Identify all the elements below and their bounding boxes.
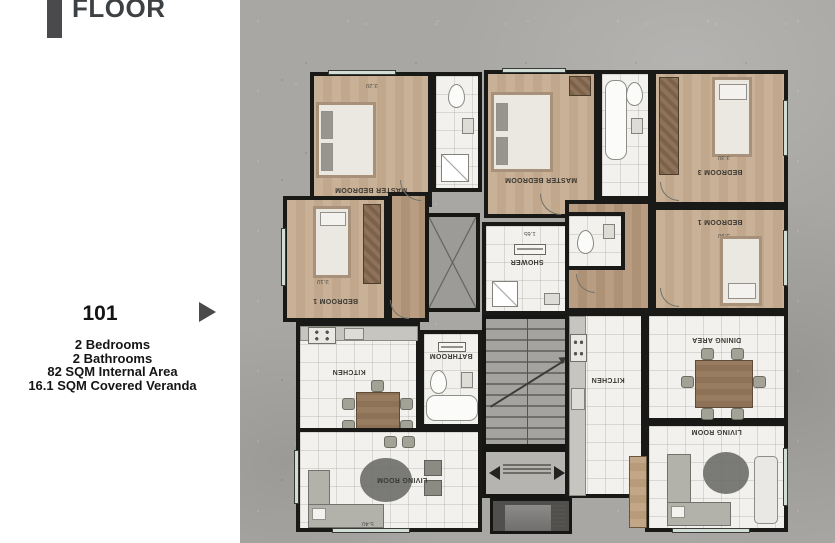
chair: [681, 376, 694, 388]
toilet-icon: [448, 84, 465, 108]
sink-icon: [571, 388, 585, 410]
tv-sideboard: [629, 456, 647, 528]
detail-bathrooms: 2 Bathrooms: [5, 352, 220, 366]
room-shower: 1.65 SHOWER: [482, 222, 572, 315]
sink-icon: [462, 118, 474, 134]
unit-number: 101: [40, 302, 160, 326]
bathtub-icon: [605, 80, 627, 160]
floor-title: FLOOR: [72, 0, 166, 24]
chair: [400, 398, 413, 410]
window: [783, 448, 788, 506]
room-label: BATHROOM: [424, 352, 478, 359]
stove-icon: [308, 327, 336, 344]
dining-table: [695, 360, 753, 408]
plan-backdrop: MASTER BEDROOM 3.20 BEDROOM 1 3.10 KITCH…: [240, 0, 835, 543]
room-label: KITCHEN: [575, 376, 641, 383]
room-bathroom-left: BATHROOM: [420, 330, 482, 428]
tv-unit: [424, 460, 442, 476]
sink-icon: [631, 118, 643, 134]
window: [783, 100, 788, 156]
room-label: SHOWER: [486, 258, 568, 265]
ensuite-bathroom-left: [432, 72, 482, 192]
room-label: LIVING ROOM: [649, 428, 784, 435]
wardrobe: [363, 204, 381, 284]
bathtub-icon: [426, 395, 478, 421]
room-label: KITCHEN: [282, 368, 416, 375]
wardrobe: [659, 77, 679, 175]
toilet-icon: [577, 230, 594, 254]
detail-bedrooms: 2 Bedrooms: [5, 338, 220, 352]
chair: [384, 436, 397, 448]
toilet-icon: [626, 82, 643, 106]
pillow: [496, 103, 508, 131]
chair: [701, 408, 714, 420]
sink-icon: [461, 372, 473, 388]
illegible-microtext: [527, 464, 551, 474]
single-bed: [720, 236, 762, 306]
elevator-shaft: [425, 213, 480, 312]
room-label: BEDROOM 3: [656, 168, 784, 175]
accent-bar: [47, 0, 62, 38]
chair: [701, 348, 714, 360]
dimension-label: 5.40: [362, 520, 374, 526]
pillow: [719, 84, 747, 100]
shower-stall-icon: [441, 154, 469, 182]
shower-stall-icon: [492, 281, 518, 307]
single-bed: [712, 77, 752, 157]
room-label: LIVING ROOM: [326, 476, 478, 483]
staircase: [482, 315, 572, 448]
toilet-icon: [430, 370, 447, 394]
window: [281, 228, 286, 286]
single-bed: [313, 206, 351, 278]
pillow: [321, 111, 333, 139]
pillow: [320, 212, 346, 226]
pillow: [728, 283, 756, 299]
stair-landing: [482, 448, 572, 498]
window: [332, 528, 410, 533]
pillow: [671, 506, 685, 518]
sink-icon: [603, 224, 615, 239]
window: [294, 450, 299, 504]
sink-icon: [344, 328, 364, 340]
unit-details: 2 Bedrooms 2 Bathrooms 82 SQM Internal A…: [5, 338, 220, 392]
chair: [753, 376, 766, 388]
pillow: [496, 137, 508, 165]
dimension-label: 3.30: [718, 154, 730, 160]
window: [328, 70, 396, 75]
pillow: [312, 508, 326, 520]
chair: [402, 436, 415, 448]
chair: [342, 398, 355, 410]
chair: [731, 408, 744, 420]
ensuite-bathroom-right: [598, 70, 652, 200]
illegible-microtext: [503, 464, 527, 474]
room-wc-right: [565, 212, 625, 270]
illegible-microtext: [552, 505, 566, 529]
rug: [703, 452, 749, 494]
illegible-microtext: [514, 244, 546, 255]
room-label: BEDROOM 1: [656, 218, 784, 225]
sink-icon: [544, 293, 560, 305]
pointer-arrow-icon[interactable]: [199, 302, 216, 322]
dimension-label: 3.20: [366, 82, 378, 88]
window: [502, 68, 566, 73]
double-bed: [491, 92, 553, 172]
dimension-label: 3.10: [317, 278, 329, 284]
room-label: DINING AREA: [649, 336, 784, 343]
building-entrance: [490, 498, 572, 534]
white-sofa: [754, 456, 778, 524]
window: [783, 230, 788, 286]
room-bedroom1-left: BEDROOM 1 3.10: [283, 196, 388, 322]
direction-arrow-left-icon: [489, 466, 500, 480]
room-living-left: LIVING ROOM 5.40: [296, 428, 482, 532]
dimension-label: 1.65: [524, 230, 536, 236]
stove-icon: [570, 334, 587, 362]
double-bed: [316, 102, 376, 178]
floorplan-page: FLOOR 101 2 Bedrooms 2 Bathrooms 82 SQM …: [0, 0, 835, 543]
chair: [731, 348, 744, 360]
room-living-right: LIVING ROOM: [645, 422, 788, 532]
entrance-door: [505, 505, 551, 531]
illegible-microtext: [438, 342, 466, 352]
detail-covered-veranda: 16.1 SQM Covered Veranda: [5, 379, 220, 393]
chair: [371, 380, 384, 392]
window: [672, 528, 750, 533]
room-label: BEDROOM 1: [287, 297, 384, 304]
closet: [569, 76, 591, 96]
room-dining-right: DINING AREA: [645, 312, 788, 422]
detail-internal-area: 82 SQM Internal Area: [5, 365, 220, 379]
pillow: [321, 143, 333, 171]
direction-arrow-right-icon: [554, 466, 565, 480]
room-label: MASTER BEDROOM: [488, 176, 594, 183]
